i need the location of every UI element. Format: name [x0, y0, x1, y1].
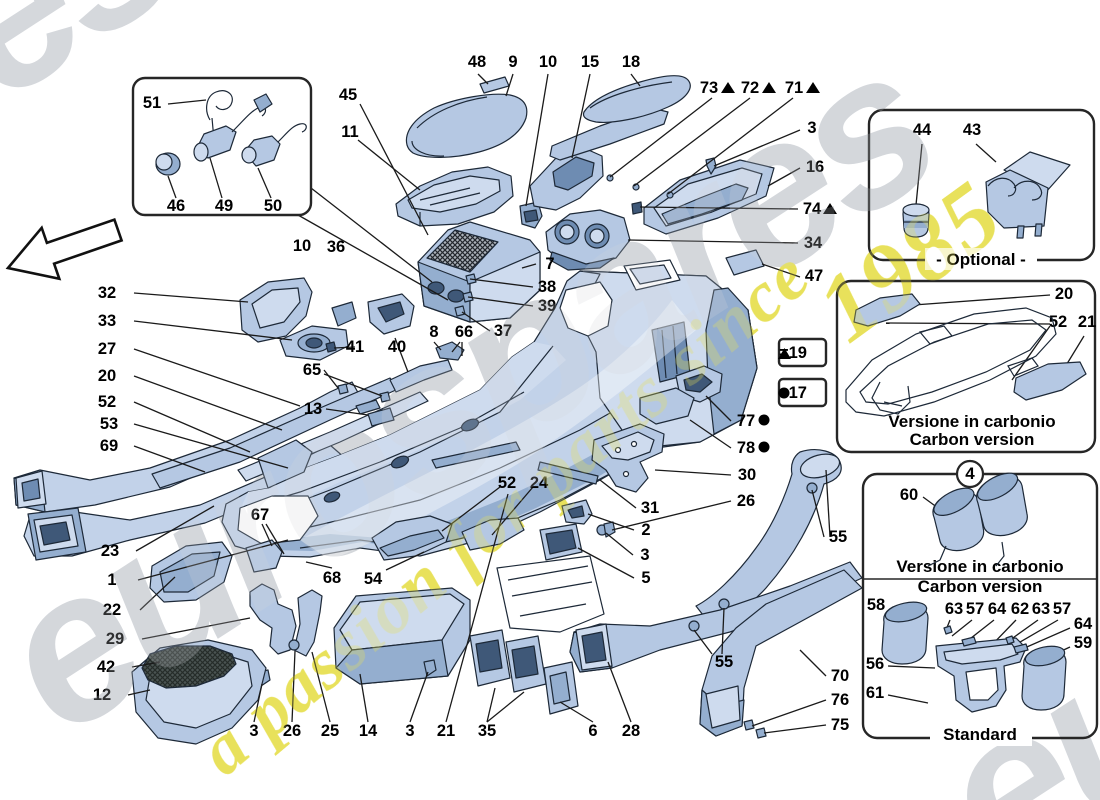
svg-text:62: 62: [1011, 600, 1029, 618]
svg-text:11: 11: [341, 123, 358, 141]
svg-text:46: 46: [167, 197, 185, 215]
svg-text:77: 77: [737, 412, 755, 430]
svg-text:78: 78: [737, 439, 755, 457]
svg-text:Carbon version: Carbon version: [918, 577, 1043, 596]
svg-text:57: 57: [1053, 600, 1071, 618]
svg-text:14: 14: [359, 722, 378, 740]
svg-text:56: 56: [866, 655, 884, 673]
svg-text:76: 76: [831, 691, 849, 709]
svg-text:Versione in carbonio: Versione in carbonio: [888, 412, 1055, 431]
svg-text:61: 61: [866, 684, 884, 702]
svg-text:15: 15: [581, 53, 599, 71]
svg-text:53: 53: [100, 415, 118, 433]
svg-text:4: 4: [965, 464, 975, 483]
svg-text:36: 36: [327, 238, 345, 256]
svg-text:32: 32: [98, 284, 116, 302]
svg-text:9: 9: [508, 53, 517, 71]
svg-text:18: 18: [622, 53, 640, 71]
svg-text:64: 64: [1074, 615, 1093, 633]
svg-text:35: 35: [478, 722, 496, 740]
svg-text:20: 20: [1055, 285, 1073, 303]
svg-text:45: 45: [339, 86, 357, 104]
svg-text:75: 75: [831, 716, 849, 734]
svg-text:33: 33: [98, 312, 116, 330]
svg-text:63: 63: [1032, 600, 1050, 618]
svg-text:64: 64: [988, 600, 1007, 618]
svg-text:55: 55: [715, 653, 733, 671]
svg-text:10: 10: [539, 53, 557, 71]
svg-text:=19: =19: [779, 344, 807, 362]
svg-text:70: 70: [831, 667, 849, 685]
svg-text:3: 3: [640, 546, 649, 564]
svg-text:52: 52: [1049, 313, 1067, 331]
svg-text:55: 55: [829, 528, 847, 546]
svg-text:Carbon version: Carbon version: [910, 430, 1035, 449]
svg-text:Versione in carbonio: Versione in carbonio: [896, 557, 1063, 576]
svg-text:27: 27: [98, 340, 116, 358]
svg-text:51: 51: [143, 94, 161, 112]
svg-text:25: 25: [321, 722, 339, 740]
svg-text:59: 59: [1074, 634, 1092, 652]
svg-text:58: 58: [867, 596, 885, 614]
svg-text:2: 2: [641, 521, 650, 539]
svg-text:48: 48: [468, 53, 486, 71]
svg-text:28: 28: [622, 722, 640, 740]
svg-text:6: 6: [588, 722, 597, 740]
svg-text:20: 20: [98, 367, 116, 385]
svg-text:Standard: Standard: [943, 725, 1017, 744]
svg-text:5: 5: [641, 569, 650, 587]
svg-text:43: 43: [963, 121, 981, 139]
svg-text:60: 60: [900, 486, 918, 504]
svg-text:52: 52: [98, 393, 116, 411]
svg-text:21: 21: [1078, 313, 1096, 331]
svg-text:=17: =17: [779, 384, 807, 402]
svg-text:57: 57: [966, 600, 984, 618]
svg-text:63: 63: [945, 600, 963, 618]
svg-text:49: 49: [215, 197, 233, 215]
svg-text:30: 30: [738, 466, 756, 484]
svg-text:31: 31: [641, 499, 659, 517]
svg-text:10: 10: [293, 237, 311, 255]
svg-text:21: 21: [437, 722, 455, 740]
svg-text:26: 26: [737, 492, 755, 510]
svg-text:50: 50: [264, 197, 282, 215]
svg-text:69: 69: [100, 437, 118, 455]
svg-text:3: 3: [405, 722, 414, 740]
